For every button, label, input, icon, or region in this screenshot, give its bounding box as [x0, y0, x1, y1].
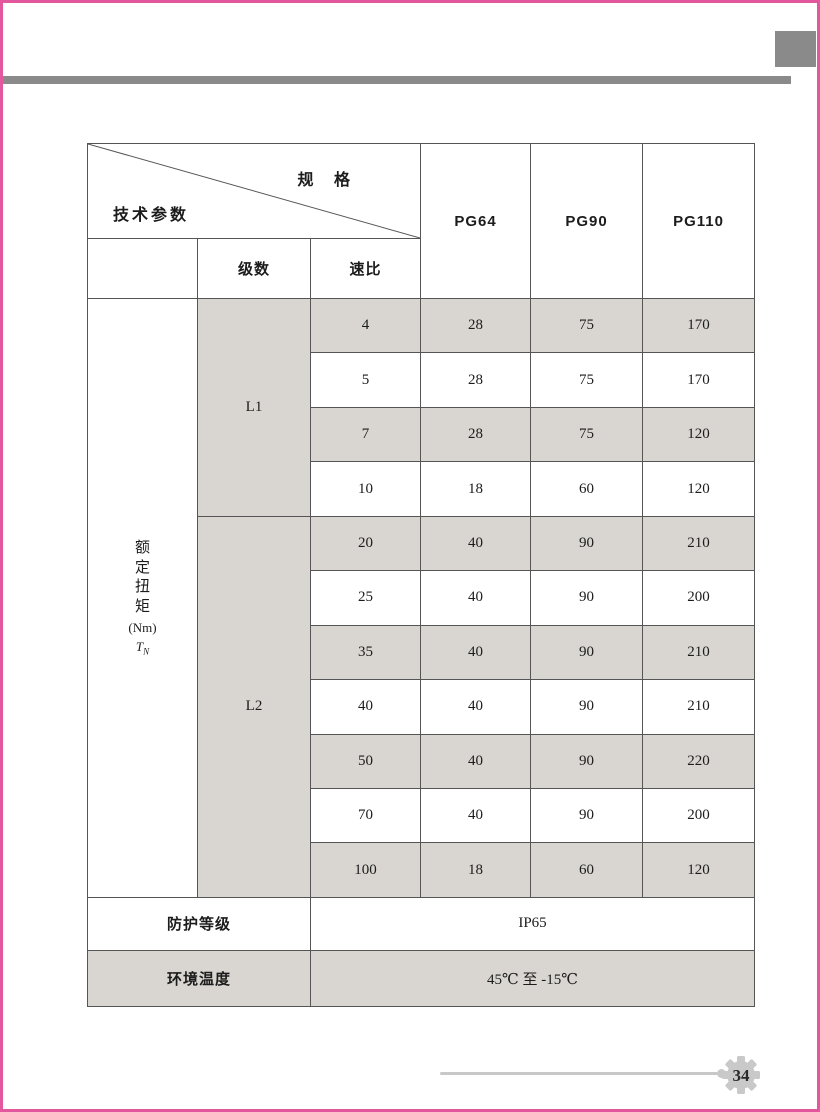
column-header-pg110: PG110	[643, 144, 755, 299]
spec-table: 规 格 技术参数 PG64 PG90 PG110 级数 速比 额定扭矩 (Nm)…	[87, 143, 755, 1007]
header-accent-bar	[3, 76, 791, 84]
torque-symbol: TN	[136, 639, 149, 657]
table-cell: 18	[421, 843, 531, 897]
subheader-stages: 级数	[198, 239, 311, 299]
table-cell: 4	[311, 299, 421, 353]
table-cell: 40	[421, 571, 531, 625]
table-cell: 90	[531, 735, 643, 789]
catalog-page: 规 格 技术参数 PG64 PG90 PG110 级数 速比 额定扭矩 (Nm)…	[0, 0, 820, 1112]
table-cell: 40	[421, 517, 531, 571]
table-cell: 90	[531, 789, 643, 843]
table-cell: 100	[311, 843, 421, 897]
table-cell: 220	[643, 735, 755, 789]
table-cell: 20	[311, 517, 421, 571]
table-cell: 120	[643, 843, 755, 897]
table-cell: 90	[531, 517, 643, 571]
table-cell: 75	[531, 353, 643, 407]
table-cell: 75	[531, 408, 643, 462]
rated-torque-label-cell: 额定扭矩 (Nm) TN	[88, 299, 198, 898]
table-cell: 40	[421, 735, 531, 789]
table-cell: 40	[311, 680, 421, 734]
table-cell: 40	[421, 680, 531, 734]
table-cell: 70	[311, 789, 421, 843]
torque-unit: (Nm)	[128, 620, 156, 636]
empty-header-cell	[88, 239, 198, 299]
stage-group-l1: L1	[198, 299, 311, 517]
table-cell: 210	[643, 517, 755, 571]
table-cell: 60	[531, 843, 643, 897]
protection-class-label: 防护等级	[88, 898, 311, 951]
header-accent-square	[775, 31, 816, 67]
table-cell: 200	[643, 789, 755, 843]
table-cell: 120	[643, 408, 755, 462]
table-cell: 60	[531, 462, 643, 516]
table-cell: 170	[643, 353, 755, 407]
diagonal-label-spec: 规 格	[298, 166, 358, 190]
table-cell: 7	[311, 408, 421, 462]
table-cell: 90	[531, 626, 643, 680]
gear-icon: 34	[722, 1056, 760, 1094]
table-cell: 90	[531, 680, 643, 734]
ambient-temperature-value: 45℃ 至 -15℃	[311, 951, 755, 1007]
footer-rule	[440, 1072, 718, 1075]
table-cell: 28	[421, 353, 531, 407]
table-cell: 120	[643, 462, 755, 516]
table-cell: 18	[421, 462, 531, 516]
table-cell: 35	[311, 626, 421, 680]
table-cell: 75	[531, 299, 643, 353]
table-cell: 10	[311, 462, 421, 516]
table-cell: 210	[643, 680, 755, 734]
page-number: 34	[733, 1066, 751, 1085]
protection-class-value: IP65	[311, 898, 755, 951]
rated-torque-vertical-label: 额定扭矩	[134, 539, 151, 617]
table-cell: 210	[643, 626, 755, 680]
subheader-ratio: 速比	[311, 239, 421, 299]
table-cell: 40	[421, 789, 531, 843]
table-cell: 28	[421, 408, 531, 462]
ambient-temperature-label: 环境温度	[88, 951, 311, 1007]
diagonal-label-tech-params: 技术参数	[113, 201, 189, 225]
table-cell: 28	[421, 299, 531, 353]
table-cell: 170	[643, 299, 755, 353]
table-cell: 90	[531, 571, 643, 625]
stage-group-l2: L2	[198, 517, 311, 898]
table-cell: 40	[421, 626, 531, 680]
table-cell: 50	[311, 735, 421, 789]
table-cell: 5	[311, 353, 421, 407]
diagonal-header-cell: 规 格 技术参数	[88, 144, 421, 239]
column-header-pg64: PG64	[421, 144, 531, 299]
table-cell: 25	[311, 571, 421, 625]
column-header-pg90: PG90	[531, 144, 643, 299]
table-cell: 200	[643, 571, 755, 625]
